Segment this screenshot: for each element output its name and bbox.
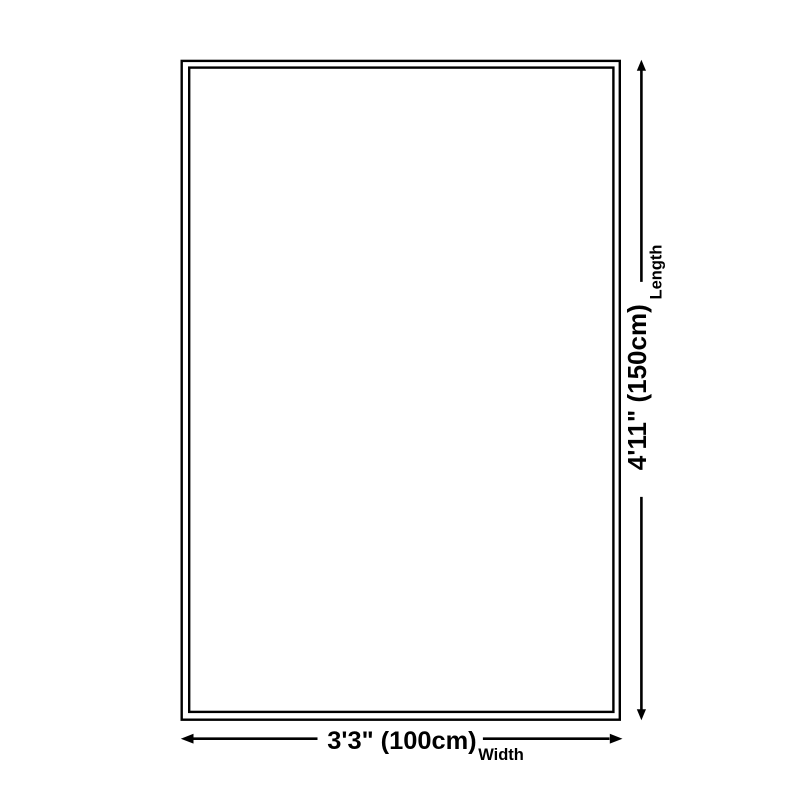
svg-text:Length: Length [647, 245, 665, 300]
svg-text:4'11" (150cm): 4'11" (150cm) [622, 304, 652, 470]
svg-text:Width: Width [478, 746, 524, 764]
svg-text:3'3" (100cm): 3'3" (100cm) [327, 727, 476, 755]
